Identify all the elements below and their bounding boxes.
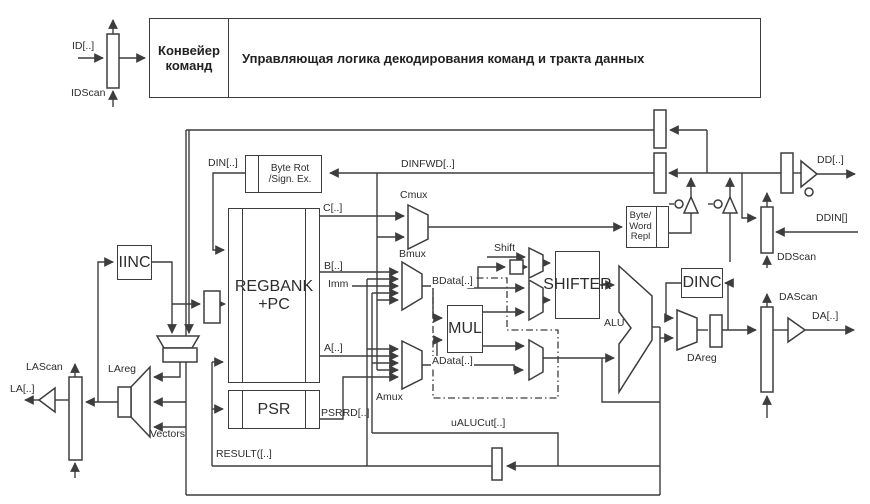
shift-const-box: [510, 260, 523, 274]
tristate-2-bubble: [714, 200, 722, 208]
pipeline-block-label: Конвейер команд: [158, 43, 220, 73]
psr-right-port-divider: [305, 390, 306, 429]
pc-latch: [204, 291, 220, 323]
la-output-buffer: [39, 388, 55, 412]
psr-left-port-divider: [242, 390, 243, 429]
amux-shape: [402, 341, 422, 389]
a-operand-mux: [529, 340, 543, 380]
lascan-label: LAScan: [26, 362, 63, 374]
byte-rot-block: Byte Rot /Sign. Ex.: [245, 155, 322, 193]
bmux-shape: [402, 262, 422, 310]
id-bus-label: ID[..]: [72, 41, 94, 53]
ualucut-bus-label: uALUCut[..]: [451, 418, 505, 430]
bdata-bus-label: BData[..]: [431, 276, 474, 288]
shift-label: Shift: [494, 243, 515, 255]
dinc-label: DINC: [682, 274, 721, 292]
mul-label: MUL: [448, 320, 482, 338]
iinc-label: IINC: [119, 254, 151, 272]
result-bus-label: RESULT([..]: [216, 449, 272, 461]
dinfwd-bus-label: DINFWD[..]: [401, 159, 455, 171]
b-operand-mux: [529, 280, 543, 320]
lareg-label: LAreg: [108, 364, 136, 376]
psrrd-bus-label: PSRRD[..]: [321, 408, 369, 420]
ddscan-latch: [761, 207, 773, 253]
id-latch: [107, 34, 119, 88]
address-mux-funnel: [157, 336, 199, 348]
dinc-block: DINC: [681, 268, 723, 298]
address-mux-base: [163, 348, 197, 362]
dareg-mux: [677, 310, 697, 350]
dd-read-tristate-1: [684, 197, 698, 213]
control-logic-label: Управляющая логика декодирования команд …: [242, 51, 644, 66]
cmux-label: Cmux: [400, 190, 427, 202]
ddscan-label: DDScan: [777, 252, 816, 264]
vectors-label: Vectors: [150, 429, 185, 441]
processor-datapath-diagram: Конвейер команд Управляющая логика декод…: [0, 0, 870, 504]
result-latch: [492, 448, 502, 480]
iinc-block: IINC: [117, 245, 152, 280]
amux-label: Amux: [376, 392, 403, 404]
da-out-latch: [761, 307, 773, 392]
decode-logic-box: Конвейер команд Управляющая логика декод…: [149, 18, 761, 98]
byte-word-divider: [656, 206, 657, 248]
tristate-1-bubble: [675, 200, 683, 208]
dd-read-tristate-2: [723, 197, 737, 213]
a-bus-label: A[..]: [324, 343, 343, 355]
forward-latch-top: [654, 110, 666, 148]
dd-out-latch: [781, 153, 793, 193]
dd-buffer-enable-bubble: [805, 188, 813, 196]
da-bus-label: DA[..]: [812, 311, 838, 323]
din-bus-label: DIN[..]: [208, 158, 238, 170]
imm-label: Imm: [328, 279, 348, 291]
c-bus-label: C[..]: [323, 203, 342, 215]
idscan-label: IDScan: [71, 88, 105, 100]
byte-word-repl-label: Byte/ Word Repl: [629, 211, 652, 244]
b-bus-label: B[..]: [324, 261, 343, 273]
cmux-shape: [408, 205, 428, 249]
la-bus-label: LA[..]: [10, 384, 35, 396]
regbank-left-port-divider: [242, 208, 243, 383]
da-output-buffer: [788, 318, 805, 342]
la-out-latch: [69, 377, 82, 460]
adata-bus-label: AData[..]: [431, 356, 474, 368]
byte-word-repl-block: Byte/ Word Repl: [626, 206, 669, 248]
shifter-block: SHIFTER: [555, 251, 600, 319]
dareg-label: DAreg: [687, 353, 717, 365]
mul-block: MUL: [447, 305, 483, 353]
dd-output-buffer: [801, 161, 817, 187]
bmux-label: Bmux: [399, 249, 426, 261]
byte-rot-label: Byte Rot /Sign. Ex.: [269, 163, 312, 185]
dinfwd-latch: [654, 153, 666, 193]
lareg-latch: [118, 387, 131, 417]
dareg-latch: [710, 315, 722, 347]
byte-rot-divider: [258, 155, 259, 193]
psr-label: PSR: [258, 401, 291, 419]
alu-label: ALU: [604, 318, 624, 330]
dascan-label: DAScan: [779, 292, 818, 304]
regbank-label: REGBANK +PC: [235, 278, 313, 314]
shifter-label: SHIFTER: [543, 276, 611, 294]
ddin-bus-label: DDIN[]: [816, 213, 848, 225]
shift-amount-mux: [529, 248, 543, 278]
dd-bus-label: DD[..]: [817, 155, 844, 167]
lareg-shape: [131, 367, 150, 437]
regbank-right-port-divider: [305, 208, 306, 383]
